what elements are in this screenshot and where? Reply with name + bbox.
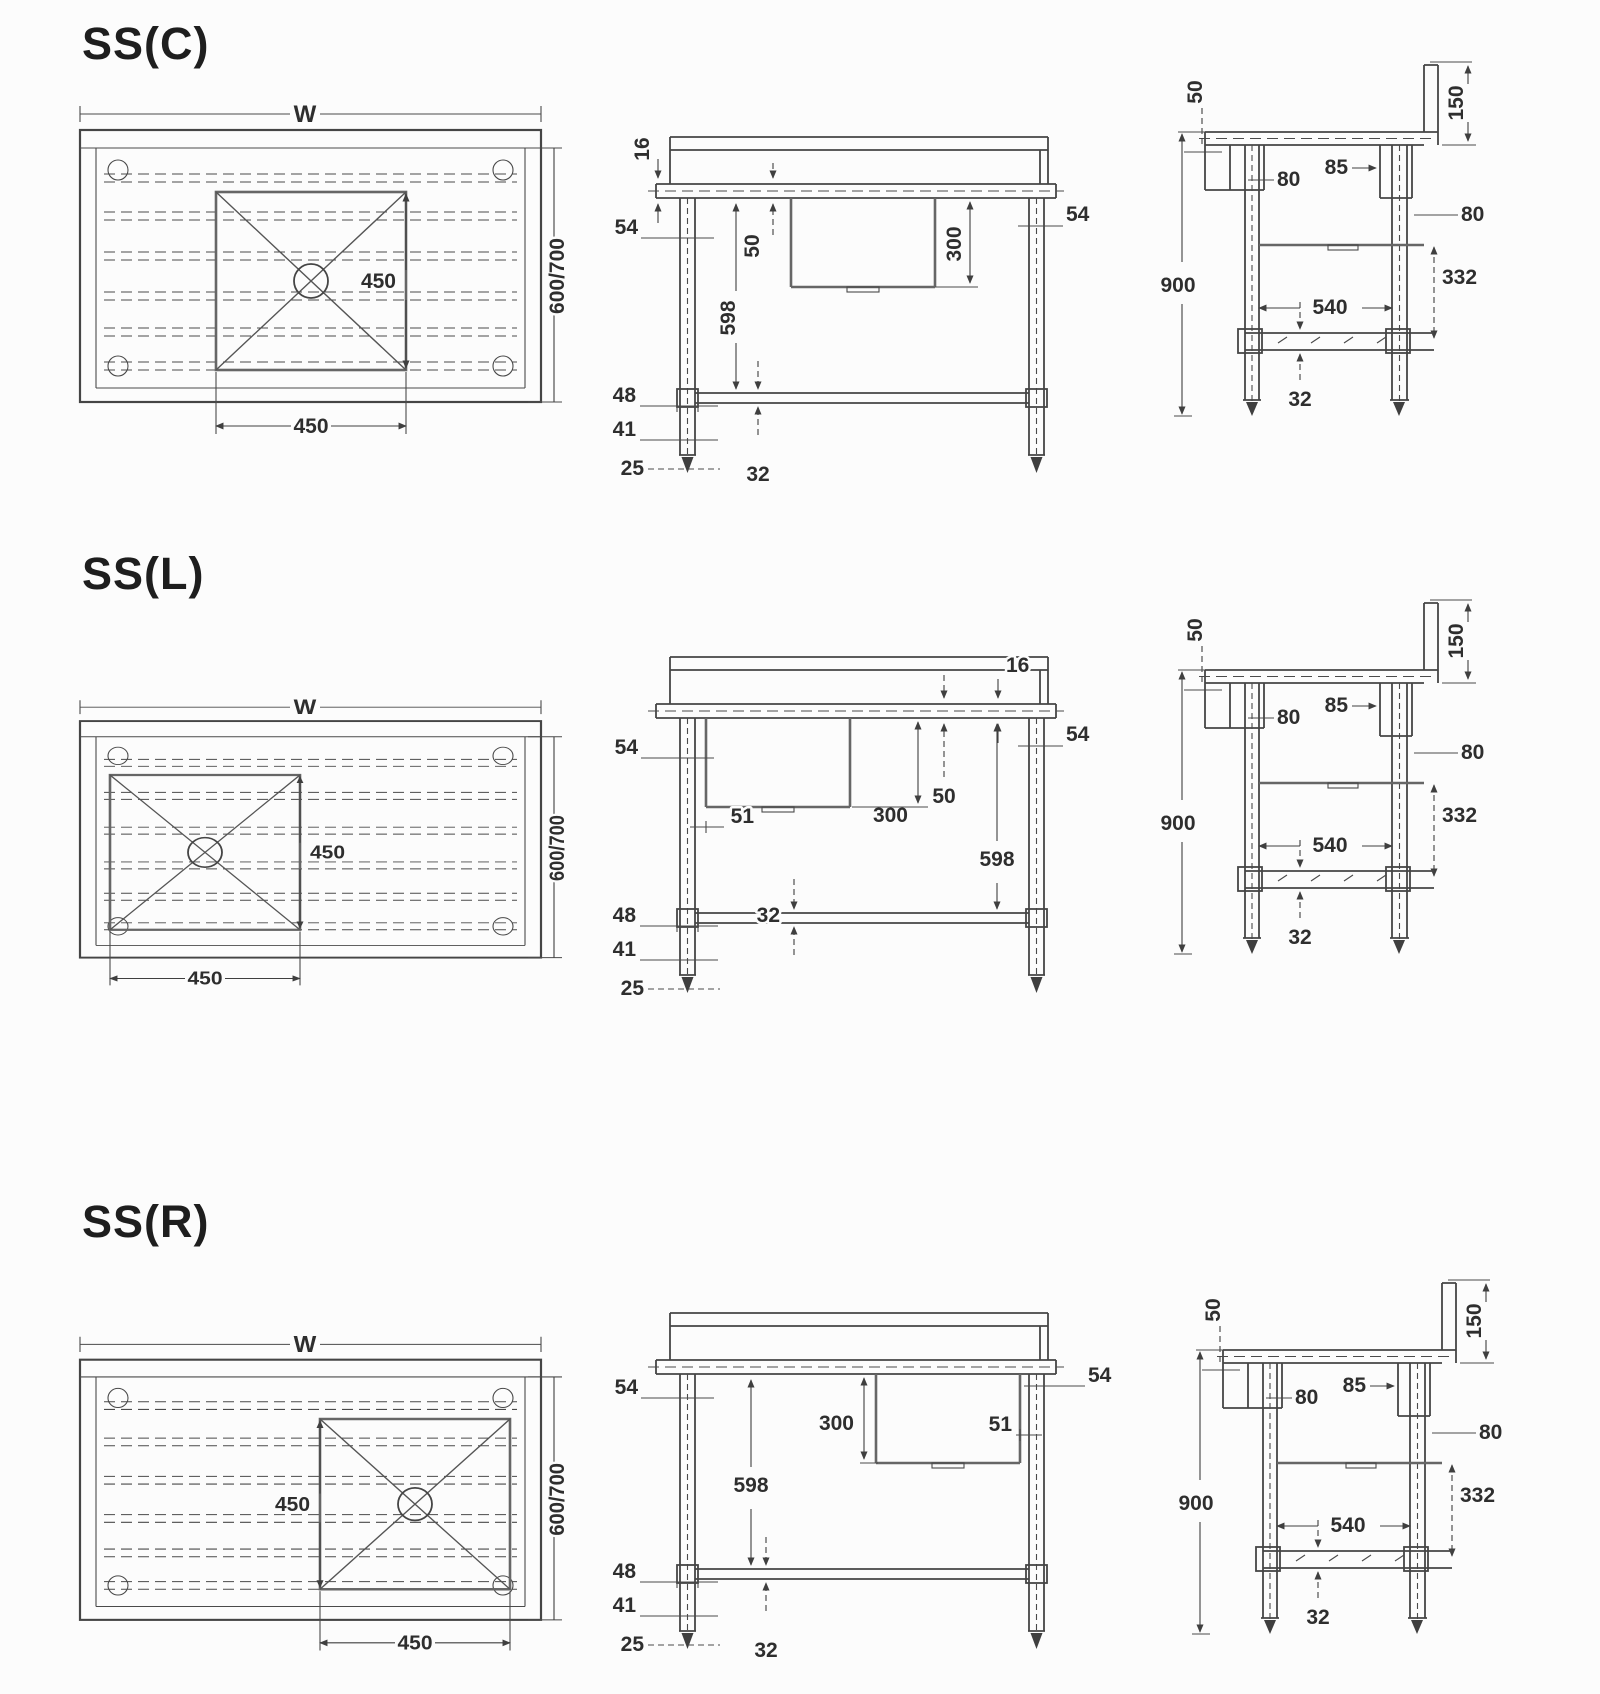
- width-label: W: [294, 696, 317, 719]
- bowl-to-shelf-label: 332: [1442, 266, 1477, 289]
- leg-circle: [108, 1576, 128, 1595]
- front-channel-label: 80: [1277, 168, 1300, 191]
- sink-diagonals: [320, 1419, 510, 1589]
- apron-label: 50: [741, 234, 764, 257]
- offset-leader: [690, 821, 724, 833]
- total-height-label: 900: [1178, 1492, 1213, 1515]
- joint-label: 48: [613, 1560, 637, 1583]
- leg-width-label: 41: [613, 1594, 637, 1617]
- bottom-rail: [695, 1569, 1029, 1579]
- splashback-label: 150: [1445, 623, 1468, 658]
- leg-width-leader: [640, 434, 718, 446]
- leg-circle: [108, 356, 128, 376]
- total-height-label: 900: [1160, 812, 1195, 835]
- rail-dia-label: 32: [757, 904, 780, 927]
- joint-leader: [640, 1576, 718, 1588]
- sink-diagonals: [110, 775, 300, 930]
- plan-view-ssr: W 450 450 600/700: [58, 1331, 573, 1661]
- depth-label: 600/700: [546, 1463, 570, 1536]
- underside-height-label: 598: [733, 1474, 768, 1497]
- legs-side: [1245, 145, 1407, 400]
- adjustable-foot: [1264, 1620, 1276, 1634]
- rear-channel-label: 80: [1461, 203, 1484, 226]
- splashback-band: [670, 137, 1048, 184]
- shelf-marks: [1278, 337, 1386, 343]
- left-leg-label: 54: [615, 736, 639, 759]
- right-leg-leader: [1018, 220, 1063, 232]
- bench-top-outline: [80, 721, 541, 958]
- left-leg-leader: [641, 232, 714, 244]
- sink-width-label: 450: [188, 969, 223, 989]
- leg-circle: [493, 356, 513, 376]
- underside-height-label: 598: [717, 300, 740, 335]
- splashback-label: 150: [1463, 1303, 1486, 1338]
- bottom-rail: [695, 913, 1029, 923]
- joint-label: 48: [613, 384, 637, 407]
- apron-label: 50: [932, 785, 955, 808]
- overhang-label: 50: [1184, 618, 1207, 641]
- shelf-marks: [1278, 875, 1386, 881]
- offset-label: 51: [989, 1413, 1013, 1436]
- splashback-side: [1424, 603, 1438, 683]
- rear-gap-label: 85: [1325, 156, 1349, 179]
- inner-frame: [80, 1377, 541, 1607]
- tube-label: 32: [1306, 1606, 1329, 1629]
- side-view-ssl: 150 50 85 80 80 332 540 32 900: [1072, 578, 1502, 978]
- leg-circle: [108, 747, 128, 764]
- inner-frame: [80, 148, 541, 388]
- spec-sheet: SS(C) W 450 450 600/700 16 54 54 50 598 …: [0, 0, 1600, 1694]
- side-view-ssc: 150 50 85 80 80 332 540 32 900: [1072, 40, 1502, 440]
- leg-circle: [493, 1388, 513, 1407]
- sink-side-label: 450: [310, 843, 345, 863]
- adjustable-foot: [1031, 1633, 1043, 1649]
- sink-width-label: 450: [293, 415, 328, 438]
- right-leg-leader: [1018, 740, 1063, 752]
- underside-height-label: 598: [979, 848, 1014, 871]
- joint-leader: [640, 400, 718, 412]
- front-view-ssr: 54 54 598 300 51 48 41 25 32: [578, 1281, 1123, 1671]
- leg-width-label: 41: [613, 418, 637, 441]
- adjustable-foot: [1393, 402, 1405, 416]
- leg-circle: [493, 160, 513, 180]
- front-channel-label: 80: [1277, 706, 1300, 729]
- variant-title-ssl: SS(L): [82, 548, 205, 600]
- plan-view-ssc: W 450 450 600/700: [58, 100, 573, 445]
- offset-leader: [1016, 1429, 1042, 1441]
- right-leg-leader: [1024, 1380, 1085, 1392]
- foot-label: 25: [621, 457, 645, 480]
- adjustable-foot: [682, 977, 694, 993]
- sink-width-label: 450: [397, 1632, 432, 1654]
- overhang-label: 50: [1184, 80, 1207, 103]
- sink-side-label: 450: [275, 1493, 310, 1515]
- adjustable-foot: [1411, 1620, 1423, 1634]
- undershelf: [1245, 333, 1434, 350]
- inner-frame: [80, 737, 541, 946]
- left-leg-label: 54: [615, 216, 639, 239]
- leg-centerlines: [688, 1374, 1037, 1639]
- adjustable-foot: [1031, 457, 1043, 473]
- overhang-label: 50: [1202, 1298, 1225, 1321]
- splashback-label: 150: [1445, 85, 1468, 120]
- undershelf: [1263, 1551, 1452, 1568]
- rail-dia-label: 32: [746, 463, 769, 486]
- leg-span-label: 540: [1330, 1514, 1365, 1537]
- foot-label: 25: [621, 1633, 645, 1656]
- left-leg-label: 54: [615, 1376, 639, 1399]
- splashback-band: [670, 657, 1048, 704]
- adjustable-foot: [1246, 402, 1258, 416]
- undershelf: [1245, 871, 1434, 888]
- front-channel-label: 80: [1295, 1386, 1318, 1409]
- top-thickness-label: 16: [631, 137, 654, 160]
- leg-width-label: 41: [613, 938, 637, 961]
- shelf-slats: [104, 1402, 517, 1589]
- legs: [680, 718, 1044, 975]
- splashback-band: [670, 1313, 1048, 1360]
- leg-span-label: 540: [1312, 834, 1347, 857]
- left-leg-leader: [641, 752, 714, 764]
- depth-label: 600/700: [546, 815, 569, 881]
- splashback-side: [1442, 1283, 1456, 1363]
- variant-title-ssr: SS(R): [82, 1196, 210, 1248]
- sink-depth-label: 300: [819, 1412, 854, 1435]
- sink-bowl-front: [791, 198, 935, 287]
- side-view-ssr: 150 50 85 80 80 332 540 32 900: [1090, 1258, 1520, 1658]
- sink-depth-label: 300: [943, 226, 966, 261]
- leg-width-leader: [640, 1610, 718, 1622]
- shelf-slats: [104, 174, 517, 370]
- adjustable-foot: [1393, 940, 1405, 954]
- plan-view-ssl: W 450 450 600/700: [58, 695, 573, 995]
- front-view-ssl: 16 54 54 51 300 50 598 48 41 25 32: [578, 625, 1123, 1015]
- leg-centerlines: [1252, 145, 1400, 410]
- tube-label: 32: [1288, 388, 1311, 411]
- rear-gap-label: 85: [1343, 1374, 1367, 1397]
- depth-label: 600/700: [546, 238, 569, 314]
- width-label: W: [294, 1332, 318, 1357]
- legs-side: [1245, 683, 1407, 938]
- foot-label: 25: [621, 977, 645, 1000]
- left-leg-leader: [641, 1392, 714, 1404]
- leg-circle: [493, 918, 513, 935]
- leg-width-leader: [640, 954, 718, 966]
- total-height-label: 900: [1160, 274, 1195, 297]
- offset-label: 51: [731, 805, 755, 828]
- tube-label: 32: [1288, 926, 1311, 949]
- bench-top-outline: [80, 130, 541, 402]
- rear-channel-label: 80: [1479, 1421, 1502, 1444]
- adjustable-foot: [682, 457, 694, 473]
- joint-leader: [640, 920, 718, 932]
- adjustable-foot: [1031, 977, 1043, 993]
- leg-span-label: 540: [1312, 296, 1347, 319]
- rail-dia-label: 32: [754, 1639, 777, 1662]
- leg-circle: [108, 1388, 128, 1407]
- joint-label: 48: [613, 904, 637, 927]
- sink-side-label: 450: [361, 270, 396, 293]
- bench-top-outline: [80, 1360, 541, 1620]
- adjustable-foot: [682, 1633, 694, 1649]
- bowl-to-shelf-label: 332: [1460, 1484, 1495, 1507]
- leg-centerlines: [1252, 683, 1400, 948]
- splashback-side: [1424, 65, 1438, 145]
- bowl-to-shelf-label: 332: [1442, 804, 1477, 827]
- variant-title-ssc: SS(C): [82, 18, 210, 70]
- leg-centerlines: [1270, 1363, 1418, 1628]
- width-label: W: [294, 101, 317, 128]
- legs-side: [1263, 1363, 1425, 1618]
- adjustable-foot: [1246, 940, 1258, 954]
- rear-channel-label: 80: [1461, 741, 1484, 764]
- leg-circle: [108, 160, 128, 180]
- leg-circle: [493, 747, 513, 764]
- bottom-rail: [695, 393, 1029, 403]
- shelf-marks: [1296, 1555, 1404, 1561]
- sink-bowl-front: [706, 718, 850, 807]
- front-view-ssc: 16 54 54 50 598 300 48 41 25 32: [578, 105, 1123, 495]
- rear-gap-label: 85: [1325, 694, 1349, 717]
- top-thickness-label: 16: [1006, 654, 1029, 677]
